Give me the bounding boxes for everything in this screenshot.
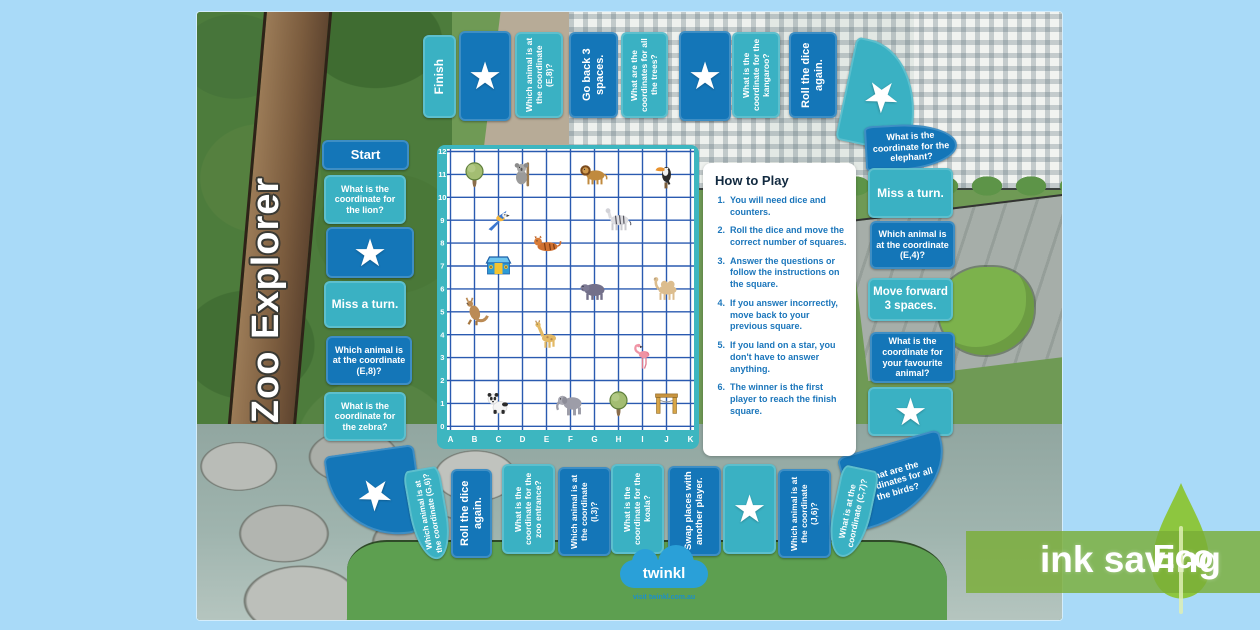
path-square-q-animal-e8: Which animal is at the coordinate (E,8)? (515, 32, 563, 118)
grid-y-label: 8 (440, 239, 444, 248)
grid-x-label: G (591, 435, 597, 444)
eco-badge-label: Eco (1143, 538, 1223, 576)
grid-y-label: 0 (440, 422, 444, 431)
path-square-q-coords-trees: What are the coordinates for all the tre… (621, 32, 668, 118)
grid-x-label: H (616, 435, 622, 444)
grid-y-label: 3 (440, 353, 444, 362)
how-to-play-steps: 1.You will need dice and counters.2.Roll… (715, 195, 849, 418)
coordinate-grid: 0123456789101112ABCDEFGHIJK (437, 145, 699, 454)
how-to-play-step: 4.If you answer incorrectly, move back t… (715, 298, 849, 334)
path-square-label: What is the coordinate for the elephant? (869, 129, 953, 165)
how-to-play-step: 5.If you land on a star, you don't have … (715, 340, 849, 376)
path-square-label: Miss a turn. (332, 297, 399, 311)
twinkl-tagline: visit twinkl.com.au (618, 594, 710, 601)
step-text: If you land on a star, you don't have to… (730, 340, 849, 376)
path-square-label: What is the coordinate for the koala? (622, 469, 652, 549)
grid-y-label: 10 (438, 193, 446, 202)
how-to-play-step: 6.The winner is the first player to reac… (715, 382, 849, 418)
how-to-play-panel: How to Play 1.You will need dice and cou… (703, 163, 856, 456)
page-title: Zoo Explorer (245, 135, 305, 465)
step-number: 4. (715, 298, 725, 334)
path-square-roll-dice-2: Roll the dice again. (451, 469, 492, 558)
twinkl-brand: twinkl (620, 565, 708, 582)
path-square-q-animal-i3: Which animal is at the coordinate (I,3)? (558, 467, 611, 556)
twinkl-cloud-icon: twinkl (620, 560, 708, 588)
path-square-label: Finish (432, 59, 446, 94)
grid-y-label: 11 (438, 170, 446, 179)
step-number: 1. (715, 195, 725, 219)
path-square-star-4: ★ (868, 387, 953, 436)
path-square-q-coord-kangaroo: What is the coordinate for the kangaroo? (732, 32, 780, 118)
step-text: You will need dice and counters. (730, 195, 849, 219)
grid-y-label: 6 (440, 285, 444, 294)
path-square-miss-turn-1: Miss a turn. (324, 281, 406, 328)
grid-y-label: 12 (438, 147, 446, 156)
grid-y-label: 1 (440, 399, 444, 408)
how-to-play-step: 2.Roll the dice and move the correct num… (715, 225, 849, 249)
step-number: 3. (715, 256, 725, 292)
grid-y-label: 7 (440, 262, 444, 271)
path-square-star-2: ★ (679, 31, 731, 121)
step-text: Roll the dice and move the correct numbe… (730, 225, 849, 249)
path-square-star-1: ★ (459, 31, 511, 121)
star-icon: ★ (353, 234, 387, 272)
path-square-roll-dice-1: Roll the dice again. (789, 32, 837, 118)
path-square-label: Which animal is at the coordinate (E,8)? (331, 345, 407, 377)
path-square-label: Swap places with another player. (683, 471, 705, 551)
path-square-start: Start (322, 140, 409, 170)
grid-x-label: F (568, 435, 573, 444)
path-square-label: What is the coordinate for the zebra? (329, 401, 401, 433)
path-square-label: What is the coordinate for the kangaroo? (741, 37, 771, 113)
game-board: Zoo Explorer Finish★Which animal is at t… (197, 12, 1062, 620)
star-icon: ★ (732, 490, 766, 528)
path-square-label: Move forward 3 spaces. (873, 286, 948, 313)
path-square-q-coord-zoo-entrance: What is the coordinate for the zoo entra… (502, 464, 555, 554)
grid-x-label: I (641, 435, 643, 444)
path-square-q-coord-favourite: What is the coordinate for your favourit… (870, 332, 955, 383)
path-square-q-animal-e8-2: Which animal is at the coordinate (E,8)? (326, 336, 412, 385)
path-square-label: Miss a turn. (877, 186, 944, 200)
star-icon: ★ (468, 57, 502, 95)
grid-y-label: 2 (440, 376, 444, 385)
how-to-play-step: 1.You will need dice and counters. (715, 195, 849, 219)
grid-x-label: B (472, 435, 478, 444)
path-square-label: What is the coordinate for the zoo entra… (513, 469, 543, 549)
step-text: The winner is the first player to reach … (730, 382, 849, 418)
grid-x-label: C (496, 435, 502, 444)
step-number: 2. (715, 225, 725, 249)
path-square-label: Which animal is at the coordinate (J,6)? (789, 474, 819, 553)
path-square-label: Which animal is at the coordinate (I,3)? (569, 472, 599, 551)
path-square-label: Which animal is at the coordinate (E,4)? (875, 229, 950, 261)
star-icon: ★ (688, 57, 722, 95)
step-number: 5. (715, 340, 725, 376)
page: Zoo Explorer Finish★Which animal is at t… (0, 0, 1260, 630)
path-square-go-back-3: Go back 3 spaces. (569, 32, 618, 118)
path-square-move-forward-3: Move forward 3 spaces. (868, 278, 953, 321)
path-square-label: Start (351, 147, 381, 162)
path-square-label: Roll the dice again. (800, 37, 826, 113)
path-square-q-animal-e4: Which animal is at the coordinate (E,4)? (870, 221, 955, 269)
path-square-label: Go back 3 spaces. (581, 37, 607, 113)
path-square-finish: Finish (423, 35, 456, 118)
how-to-play-step: 3.Answer the questions or follow the ins… (715, 256, 849, 292)
path-square-label: What is the coordinate for the lion? (329, 184, 401, 216)
path-square-star-5: ★ (723, 464, 776, 554)
path-square-q-coord-zebra: What is the coordinate for the zebra? (324, 392, 406, 441)
grid-x-label: D (520, 435, 526, 444)
star-icon: ★ (854, 67, 910, 123)
path-square-q-coord-lion: What is the coordinate for the lion? (324, 175, 406, 224)
step-text: If you answer incorrectly, move back to … (730, 298, 849, 334)
star-icon: ★ (893, 393, 927, 431)
path-square-swap-places: Swap places with another player. (668, 466, 721, 556)
grid-x-label: J (664, 435, 668, 444)
how-to-play-title: How to Play (715, 173, 849, 188)
grid-x-label: K (688, 435, 694, 444)
path-square-star-3: ★ (326, 227, 414, 278)
path-square-q-animal-j6: Which animal is at the coordinate (J,6)? (778, 469, 831, 558)
twinkl-logo: twinkl visit twinkl.com.au (618, 552, 710, 604)
grid-y-label: 9 (440, 216, 444, 225)
grid-x-label: E (544, 435, 550, 444)
star-icon: ★ (347, 466, 402, 522)
path-square-label: Which animal is at the coordinate (E,8)? (524, 37, 554, 113)
step-text: Answer the questions or follow the instr… (730, 256, 849, 292)
grid-x-label: A (448, 435, 454, 444)
path-square-miss-turn-2: Miss a turn. (868, 168, 953, 218)
grid-y-label: 5 (440, 307, 444, 316)
animal-zoo-entrance (487, 257, 511, 274)
path-square-label: Roll the dice again. (459, 474, 485, 553)
path-square-label: What is the coordinate for your favourit… (875, 336, 950, 378)
path-square-q-coord-koala: What is the coordinate for the koala? (611, 464, 664, 554)
step-number: 6. (715, 382, 725, 418)
path-square-label: What are the coordinates for all the tre… (629, 37, 659, 113)
